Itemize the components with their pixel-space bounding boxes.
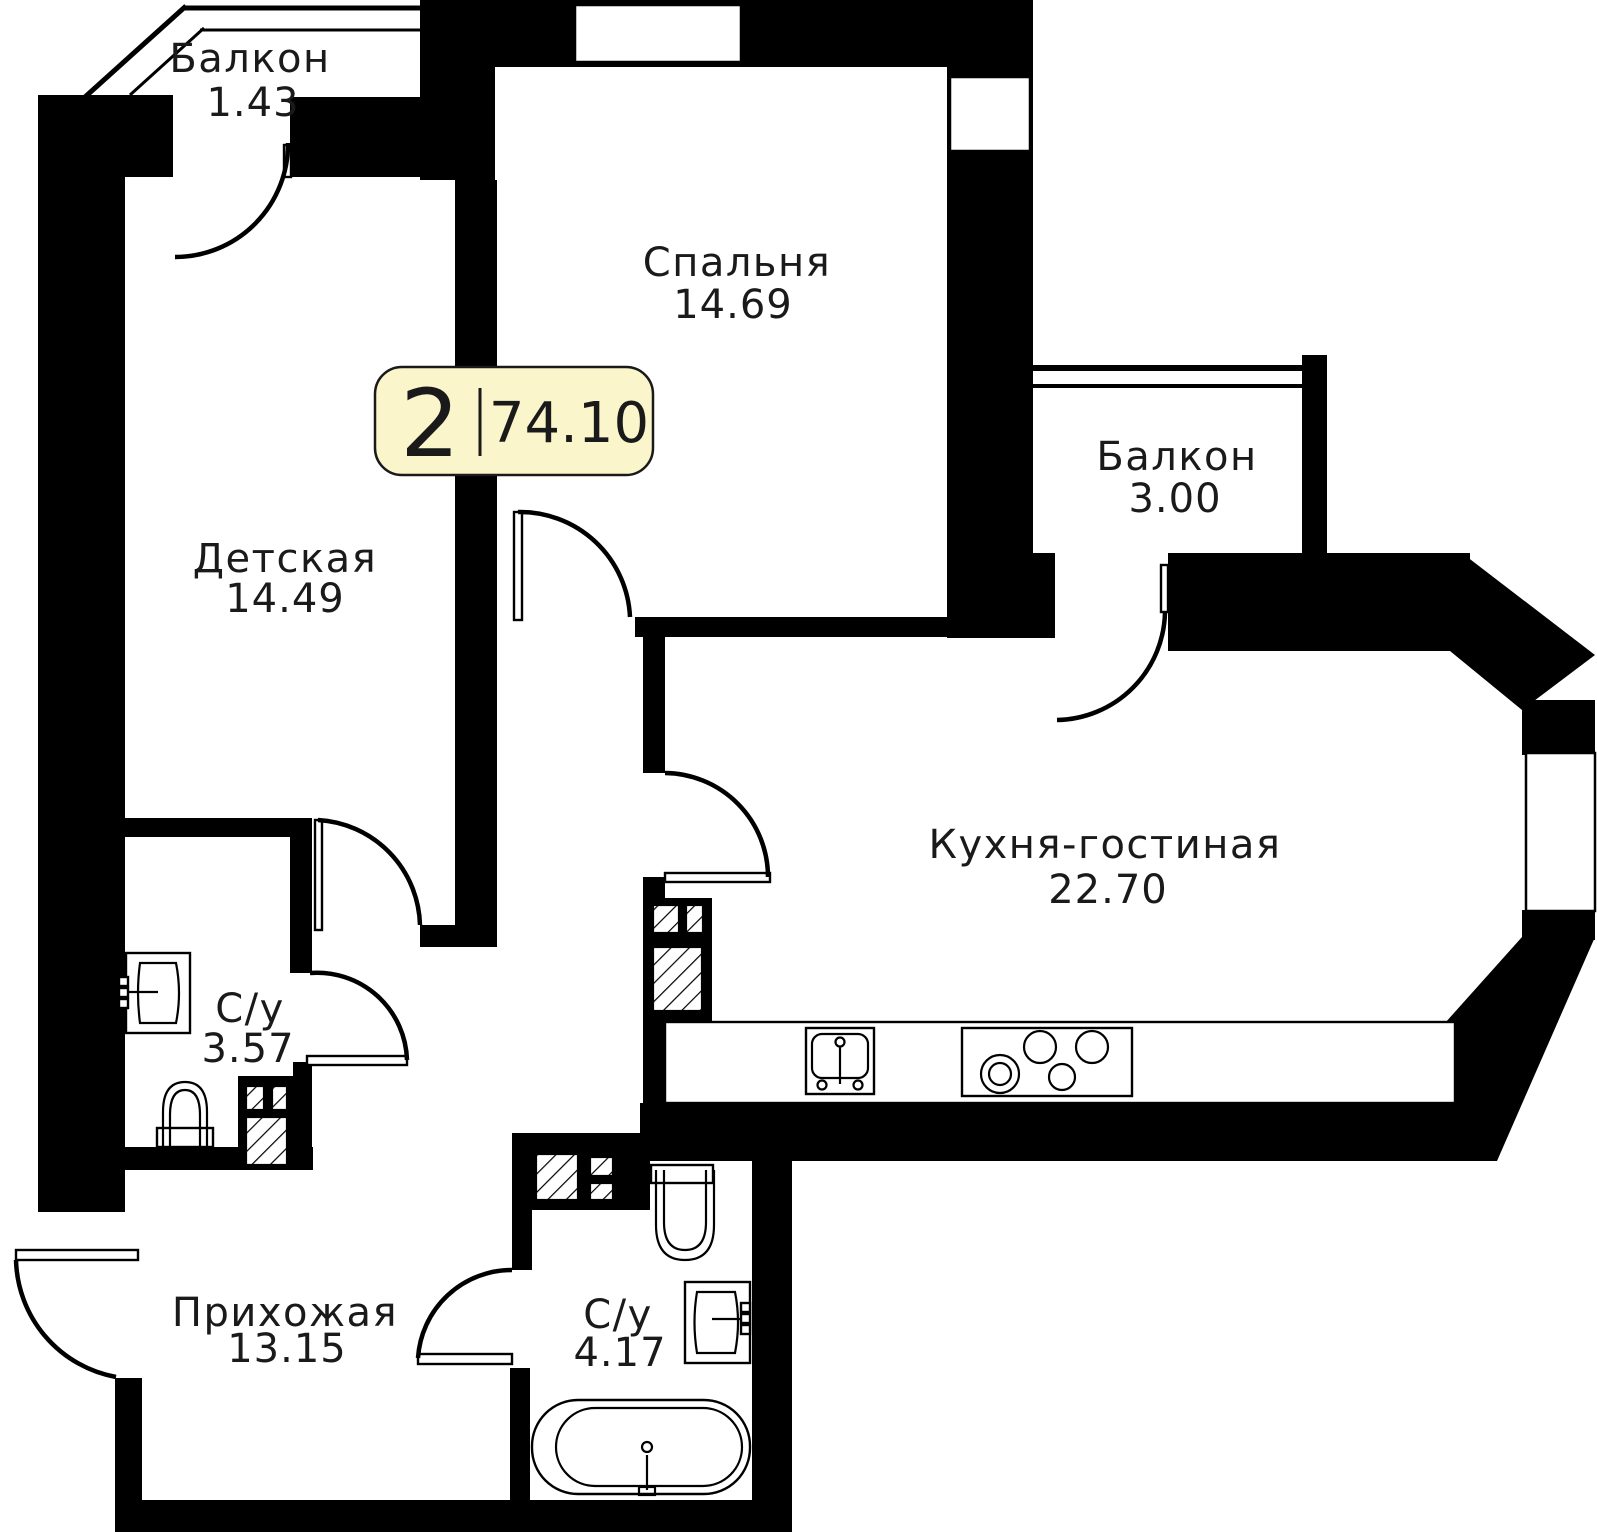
door-leaf <box>665 873 770 882</box>
door-arc <box>16 1260 116 1377</box>
vent-cell <box>536 1154 578 1200</box>
door-arc <box>518 512 630 617</box>
wall-segment <box>125 818 312 837</box>
faucet <box>119 988 128 997</box>
ventilation-shaft <box>512 1133 650 1210</box>
wall-segment <box>115 1500 792 1532</box>
wall-segment <box>1450 553 1595 710</box>
wall-segment <box>115 1378 142 1500</box>
door-leaf <box>307 1056 407 1065</box>
room-area: 1.43 <box>206 80 299 126</box>
wall-segment <box>510 1368 530 1500</box>
faucet <box>741 1303 750 1312</box>
windows <box>575 5 1595 911</box>
wall-segment <box>512 1210 532 1270</box>
wall-segment <box>1522 700 1595 755</box>
wall-segment <box>290 837 312 973</box>
door-leaf <box>315 820 322 930</box>
wall-segment <box>1033 553 1055 638</box>
kitchen-counter-icon <box>665 1022 1455 1103</box>
floor-plan-page: Балкон 1.43 Спальня 14.69 Детская 14.49 … <box>0 0 1597 1532</box>
unit-badge: 2 74.10 <box>375 367 653 479</box>
room-area: 22.70 <box>1048 867 1168 913</box>
faucet <box>119 977 128 986</box>
room-labels: Балкон 1.43 Спальня 14.69 Детская 14.49 … <box>169 36 1281 1376</box>
vent-cell <box>272 1086 287 1110</box>
door-arc <box>665 773 768 877</box>
vent-cell <box>653 947 702 1011</box>
door-leaf <box>514 512 522 620</box>
vent-cell <box>590 1183 613 1200</box>
wall-segment <box>752 1161 792 1532</box>
wall-segment <box>38 95 125 1212</box>
washbasin-icon <box>119 953 190 1033</box>
room-area: 14.49 <box>225 576 345 622</box>
room-name: Кухня-гостиная <box>929 822 1282 868</box>
kitchen-sink-icon <box>806 1028 874 1094</box>
room-name: Спальня <box>643 240 831 286</box>
room-area: 14.69 <box>673 282 793 328</box>
window <box>575 5 741 62</box>
door-arc <box>310 973 407 1060</box>
door-arc <box>175 143 288 257</box>
badge-total-area: 74.10 <box>489 391 649 456</box>
faucet <box>741 1314 750 1323</box>
window <box>1526 753 1595 911</box>
faucet <box>119 999 128 1008</box>
room-area: 3.00 <box>1128 476 1221 522</box>
badge-rooms-count: 2 <box>400 370 460 479</box>
stove-icon <box>962 1028 1132 1096</box>
wall-segment <box>290 97 420 177</box>
door-arc <box>318 820 420 925</box>
room-area: 3.57 <box>201 1026 294 1072</box>
door-leaf <box>1161 565 1168 612</box>
wall-segment <box>420 925 497 947</box>
vent-cell <box>246 1117 287 1165</box>
room-area: 13.15 <box>227 1326 347 1372</box>
wall-segment <box>455 180 497 947</box>
door-arc <box>418 1270 512 1358</box>
floor-plan-drawing: Балкон 1.43 Спальня 14.69 Детская 14.49 … <box>0 0 1597 1532</box>
toilet-tank <box>651 1165 713 1183</box>
vent-cell <box>246 1086 264 1110</box>
wall-segment <box>1522 910 1595 940</box>
vent-cell <box>686 905 703 933</box>
door-leaf <box>418 1354 512 1364</box>
door-leaf <box>16 1250 138 1260</box>
toilet-icon <box>651 1165 714 1260</box>
wall-segment <box>420 0 495 180</box>
toilet-base <box>157 1128 213 1147</box>
faucet <box>741 1325 750 1334</box>
window <box>950 77 1030 151</box>
wall-segment <box>643 637 665 773</box>
door-arc <box>1057 612 1165 720</box>
room-name: Балкон <box>169 36 330 82</box>
room-name: Балкон <box>1096 434 1257 480</box>
wall-segment <box>1168 553 1470 651</box>
vent-cell <box>653 905 679 933</box>
toilet-icon <box>157 1082 213 1147</box>
washbasin-icon <box>685 1282 750 1363</box>
bathtub-icon <box>532 1400 750 1495</box>
vent-cell <box>590 1157 613 1176</box>
room-area: 4.17 <box>573 1330 666 1376</box>
wall-segment <box>635 617 947 637</box>
